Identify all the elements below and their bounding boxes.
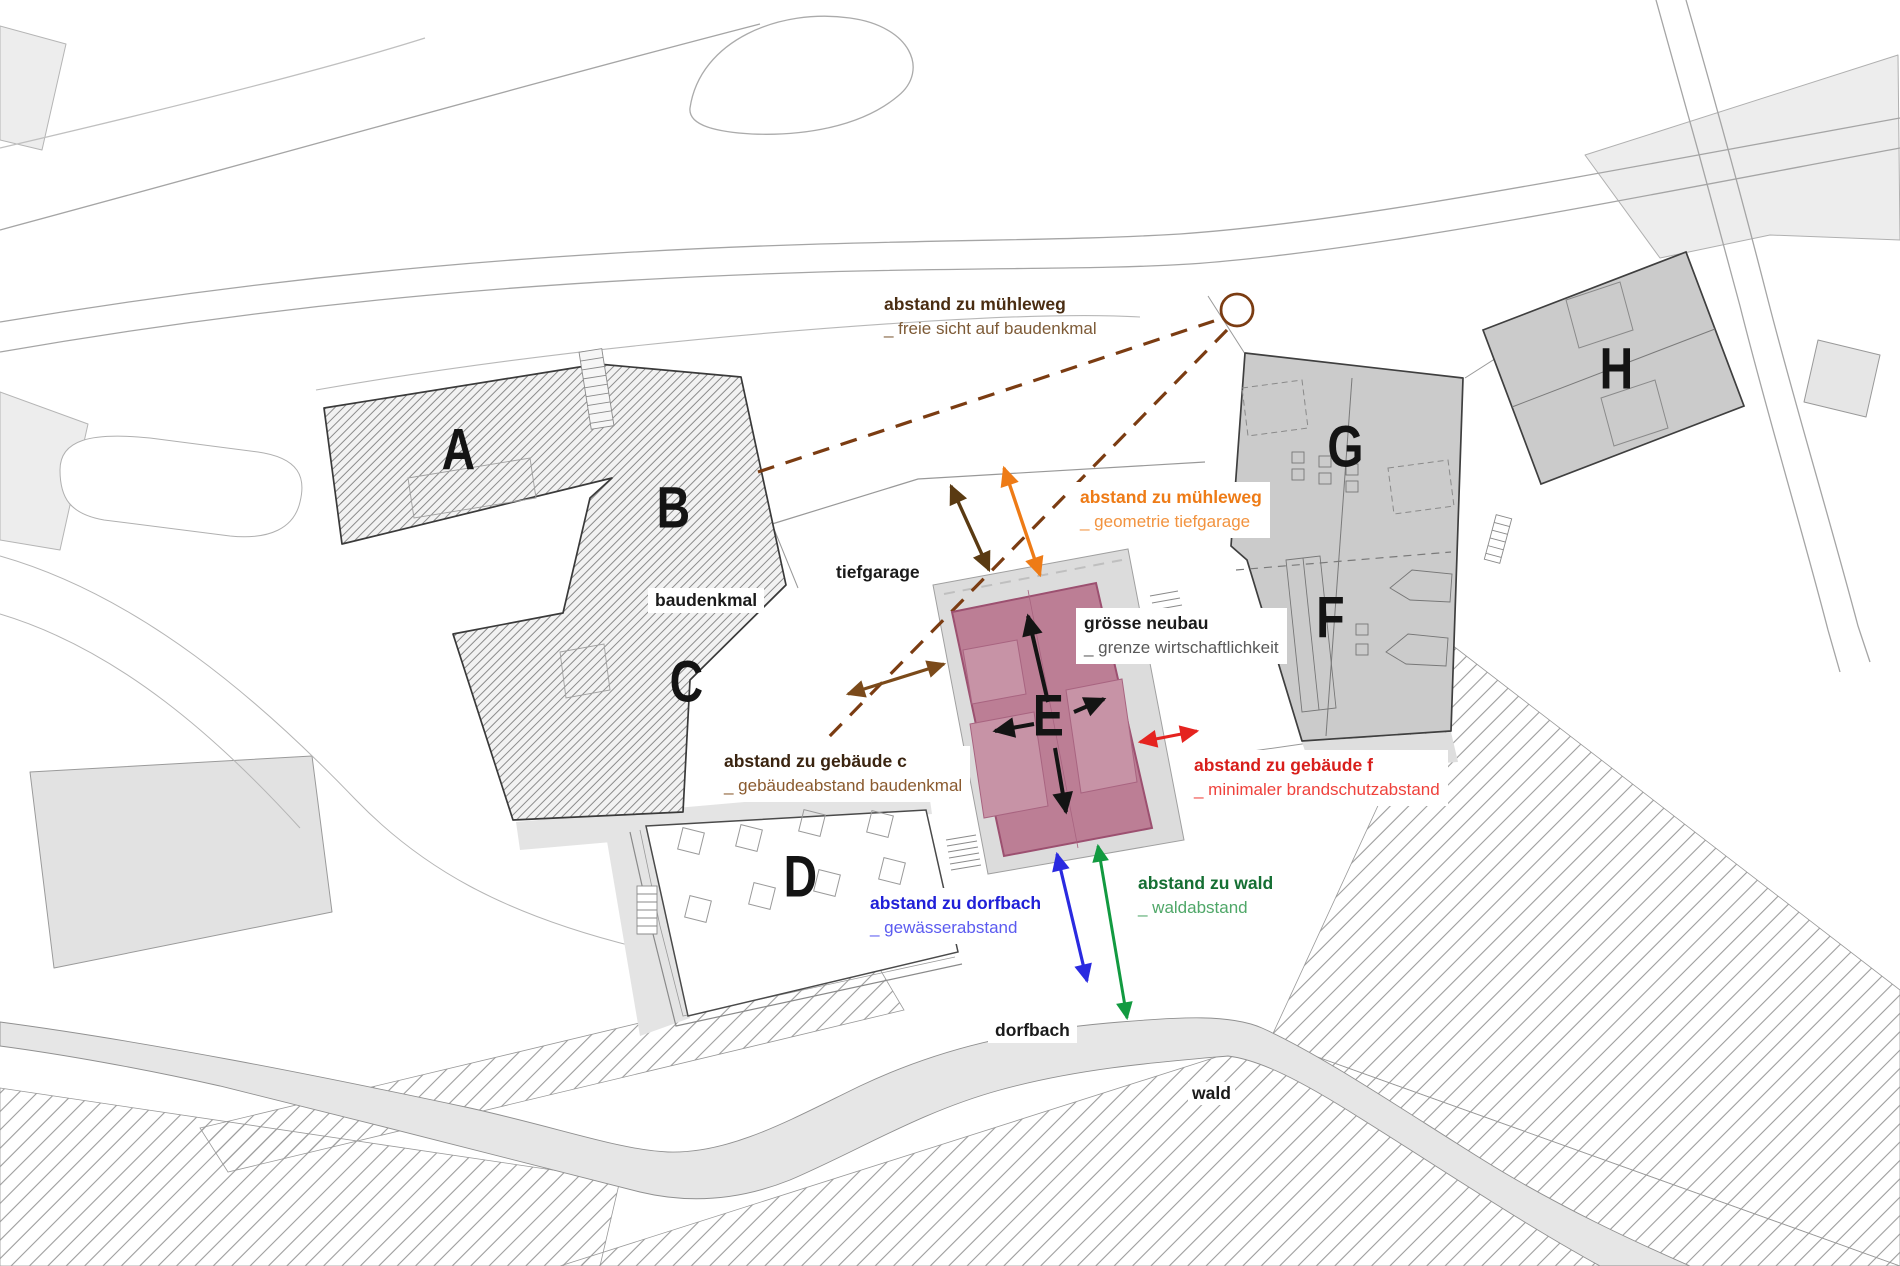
plan-drawing (0, 0, 1900, 1266)
annotation-subtitle: _ gebäudeabstand baudenkmal (724, 774, 962, 798)
label-wald: wald (1188, 1082, 1235, 1105)
building-label-e: E (1033, 683, 1063, 750)
label-baudenkmal: baudenkmal (648, 588, 764, 613)
annotation-subtitle: _ grenze wirtschaftlichkeit (1084, 636, 1279, 660)
annotation-muehleweg-tiefgarage: abstand zu mühleweg _ geometrie tiefgara… (1072, 482, 1270, 538)
label-dorfbach: dorfbach (988, 1018, 1077, 1043)
annotation-title: abstand zu mühleweg (884, 292, 1097, 317)
stairs-icon (637, 886, 657, 934)
site-plan: A B C D E F G H baudenkmal tiefgarage do… (0, 0, 1900, 1266)
annotation-subtitle: _ freie sicht auf baudenkmal (884, 317, 1097, 341)
annotation-subtitle: _ minimaler brandschutzabstand (1194, 778, 1440, 802)
building-label-c: C (670, 649, 703, 716)
annotation-subtitle: _ geometrie tiefgarage (1080, 510, 1262, 534)
building-label-h: H (1600, 336, 1633, 403)
annotation-subtitle: _ gewässerabstand (870, 916, 1041, 940)
annotation-abstand-dorfbach: abstand zu dorfbach _ gewässerabstand (862, 888, 1049, 944)
building-label-a: A (442, 417, 475, 484)
annotation-title: abstand zu gebäude c (724, 749, 962, 774)
building-label-g: G (1327, 414, 1362, 481)
label-tiefgarage: tiefgarage (836, 562, 920, 583)
annotation-abstand-gebaeude-f: abstand zu gebäude f _ minimaler brandsc… (1186, 750, 1448, 806)
viewpoint-circle (1221, 294, 1253, 326)
annotation-muehleweg-sicht: abstand zu mühleweg _ freie sicht auf ba… (884, 292, 1097, 340)
building-label-b: B (657, 475, 690, 542)
annotation-subtitle: _ waldabstand (1138, 896, 1273, 920)
annotation-title: abstand zu dorfbach (870, 891, 1041, 916)
annotation-groesse-neubau: grösse neubau _ grenze wirtschaftlichkei… (1076, 608, 1287, 664)
annotation-abstand-gebaeude-c: abstand zu gebäude c _ gebäudeabstand ba… (716, 746, 970, 802)
annotation-title: grösse neubau (1084, 611, 1279, 636)
building-label-f: F (1316, 585, 1344, 652)
annotation-abstand-wald: abstand zu wald _ waldabstand (1130, 868, 1281, 924)
building-label-d: D (784, 844, 817, 911)
annotation-title: abstand zu wald (1138, 871, 1273, 896)
annotation-title: abstand zu gebäude f (1194, 753, 1440, 778)
annotation-title: abstand zu mühleweg (1080, 485, 1262, 510)
